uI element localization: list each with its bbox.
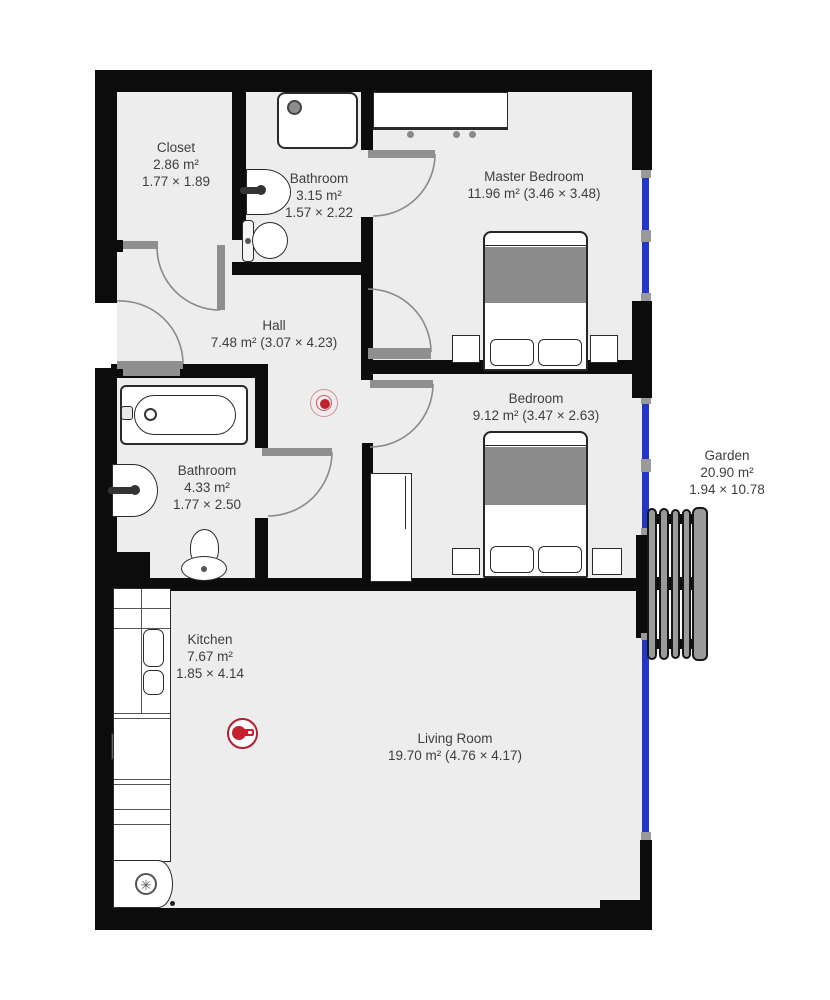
door-leaf-master	[368, 348, 431, 359]
room-label-kitchen: Kitchen 7.67 m² 1.85 × 4.14	[176, 631, 244, 682]
wardrobe-knob	[407, 131, 414, 138]
wall-bathroom-top-bottom	[232, 262, 363, 275]
room-name: Closet	[142, 139, 210, 156]
room-area: 2.86 m²	[142, 156, 210, 173]
room-label-master-bedroom: Master Bedroom 11.96 m² (3.46 × 3.48)	[468, 168, 601, 202]
room-label-bathroom-top: Bathroom 3.15 m² 1.57 × 2.22	[285, 170, 353, 221]
wall-bottom	[95, 908, 652, 930]
window-sill	[641, 170, 651, 178]
thermostat-icon	[310, 389, 338, 417]
wall-closet-bottom	[95, 240, 123, 252]
counter-divider	[114, 713, 170, 714]
master-bed-pillow	[538, 339, 582, 366]
room-area-dims: 9.12 m² (3.47 × 2.63)	[473, 407, 599, 424]
window-living-room	[642, 640, 649, 832]
wall-right-mid1	[632, 301, 652, 398]
wall-right-top	[632, 70, 652, 170]
room-name: Bathroom	[285, 170, 353, 187]
bathtub-tap	[121, 406, 133, 420]
room-area-dims: 19.70 m² (4.76 × 4.17)	[388, 747, 522, 764]
window-sill	[641, 293, 651, 301]
counter-divider	[114, 824, 170, 825]
door-leaf-closet-closed	[123, 241, 158, 249]
room-area: 3.15 m²	[285, 187, 353, 204]
room-label-hall: Hall 7.48 m² (3.07 × 4.23)	[211, 317, 337, 351]
door-leaf-closet-open	[217, 245, 225, 310]
door-leaf-bathroom-bottom	[262, 448, 332, 456]
door-leaf-bedroom	[370, 380, 433, 388]
kitchen-sink-basin	[143, 629, 164, 667]
wall-edge-strip	[123, 368, 180, 376]
wall-closet-bathroom	[232, 92, 246, 240]
room-name: Living Room	[388, 730, 522, 747]
bedroom-nightstand-right	[592, 548, 622, 575]
fence-slat	[671, 509, 680, 659]
room-dims: 1.77 × 2.50	[173, 496, 241, 513]
room-area: 4.33 m²	[173, 479, 241, 496]
room-dims: 1.57 × 2.22	[285, 204, 353, 221]
room-name: Master Bedroom	[468, 168, 601, 185]
master-bed-blanket	[485, 247, 586, 303]
bathroom-top-toilet-bowl	[252, 222, 288, 259]
room-label-closet: Closet 2.86 m² 1.77 × 1.89	[142, 139, 210, 190]
room-label-bedroom: Bedroom 9.12 m² (3.47 × 2.63)	[473, 390, 599, 424]
counter-divider	[114, 809, 170, 810]
fence-slat	[682, 509, 691, 659]
window-mullion	[641, 459, 651, 472]
bedroom-bed-pillow	[490, 546, 534, 573]
bedroom-nightstand-left	[452, 548, 480, 575]
room-name: Kitchen	[176, 631, 244, 648]
fridge: ✳	[113, 860, 173, 908]
window-bedroom-1	[642, 404, 649, 459]
master-wardrobe	[373, 92, 508, 130]
bathroom-top-toilet-button	[245, 238, 251, 244]
shower-drain-icon	[287, 100, 302, 115]
counter-divider	[141, 589, 142, 713]
counter-divider	[114, 608, 170, 609]
stove-bottom-edge	[114, 779, 170, 780]
room-name: Garden	[689, 447, 764, 464]
bedroom-bed-blanket	[485, 447, 586, 505]
room-area: 20.90 m²	[689, 464, 764, 481]
cooktop-pan-icon	[227, 718, 258, 749]
kitchen-counter	[113, 588, 171, 862]
room-name: Hall	[211, 317, 337, 334]
counter-divider	[114, 628, 170, 629]
room-dims: 1.77 × 1.89	[142, 173, 210, 190]
master-nightstand-left	[452, 335, 480, 363]
bathroom-top-sink-tap-knob	[256, 185, 266, 195]
room-label-bathroom-bottom: Bathroom 4.33 m² 1.77 × 2.50	[173, 462, 241, 513]
window-sill	[641, 832, 651, 840]
wardrobe-knob	[453, 131, 460, 138]
door-leaf-entrance	[117, 361, 183, 369]
fence-slat	[692, 507, 708, 661]
wall-left-upper	[95, 70, 117, 303]
fridge-handle	[170, 901, 175, 906]
wall-bathroom-bottom-corner	[111, 552, 150, 590]
snowflake-icon: ✳	[135, 873, 157, 895]
bedroom-bed-pillow	[538, 546, 582, 573]
counter-divider	[114, 784, 170, 785]
floor-plan: ✳ Closet 2.86 m² 1.77 × 1.89 Bathroom 3.…	[0, 0, 830, 1000]
master-nightstand-right	[590, 335, 618, 363]
pan-handle-hole	[248, 731, 252, 734]
room-label-garden: Garden 20.90 m² 1.94 × 10.78	[689, 447, 764, 498]
wall-bathroom-master	[361, 92, 373, 150]
room-area: 7.67 m²	[176, 648, 244, 665]
stove-top-edge	[114, 718, 170, 719]
room-name: Bathroom	[173, 462, 241, 479]
room-dims: 1.85 × 4.14	[176, 665, 244, 682]
fence-slat	[647, 508, 657, 660]
room-dims: 1.94 × 10.78	[689, 481, 764, 498]
fence-slat	[659, 508, 669, 660]
room-area-dims: 11.96 m² (3.46 × 3.48)	[468, 185, 601, 202]
window-master-bedroom-1	[642, 178, 649, 230]
wall-right-bottom	[640, 840, 652, 930]
wardrobe-knob	[469, 131, 476, 138]
wall-top	[95, 70, 652, 92]
master-bed	[483, 231, 588, 371]
window-master-bedroom-2	[642, 242, 649, 293]
room-label-living-room: Living Room 19.70 m² (4.76 × 4.17)	[388, 730, 522, 764]
bathtub-faucet-dot	[144, 408, 157, 421]
bathroom-bottom-sink-tap-knob	[130, 485, 140, 495]
kitchen-sink-basin	[143, 670, 164, 695]
bathroom-bottom-toilet-button	[201, 566, 207, 572]
wall-bathroom-bottom-east-upper	[255, 378, 268, 448]
bedroom-wardrobe-door-line	[405, 476, 406, 529]
bedroom-bed	[483, 431, 588, 578]
room-area-dims: 7.48 m² (3.07 × 4.23)	[211, 334, 337, 351]
thermostat-dot	[320, 399, 330, 409]
room-name: Bedroom	[473, 390, 599, 407]
master-bed-pillow	[490, 339, 534, 366]
door-leaf-ensuite	[368, 150, 435, 158]
bedroom-wardrobe	[370, 473, 412, 582]
window-mullion	[641, 230, 651, 242]
